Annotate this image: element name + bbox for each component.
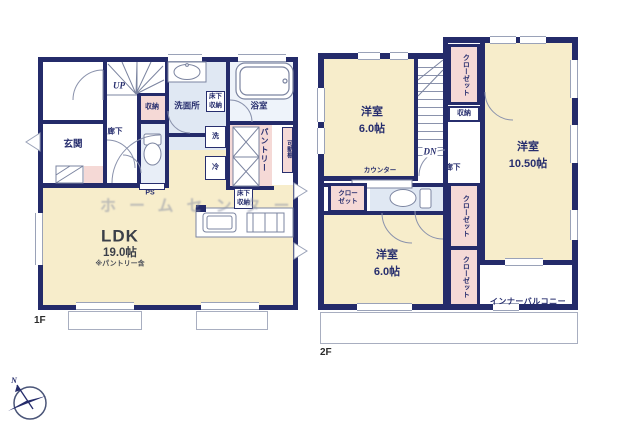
- wall: [226, 121, 298, 125]
- room-toilet-2f: [370, 185, 443, 212]
- window: [570, 125, 578, 163]
- movable-shelf-label: 可動棚: [284, 140, 292, 158]
- wall: [318, 176, 418, 181]
- window: [238, 54, 286, 62]
- window: [570, 60, 578, 98]
- window: [358, 52, 380, 60]
- bedroom-a-label: 洋室: [361, 106, 383, 120]
- closet-top-label: クローゼット: [461, 54, 470, 96]
- floorplan-canvas: 収納: [0, 0, 620, 431]
- watermark-text: ホームセンター: [100, 192, 303, 216]
- hallway-2f-label: 廊下: [446, 162, 461, 171]
- window: [317, 88, 325, 122]
- window: [168, 54, 202, 62]
- ldk-note-label: ※パントリー含: [95, 261, 144, 270]
- wall: [165, 133, 209, 137]
- closet-middle-label: クローゼット: [461, 195, 470, 237]
- ldk-size-label: 19.0帖: [103, 246, 137, 260]
- counter-label: カウンター: [363, 167, 398, 175]
- entrance-label: 玄関: [63, 139, 82, 151]
- wall: [318, 53, 451, 59]
- window: [490, 36, 516, 44]
- bathroom-label: 浴室: [250, 101, 267, 112]
- floor2-tag: 2F: [320, 347, 332, 358]
- window: [357, 303, 412, 311]
- window: [390, 52, 408, 60]
- window: [35, 213, 43, 265]
- compass-icon: [8, 385, 46, 419]
- ldk-label: LDK: [101, 225, 139, 246]
- stairs-up-label: UP: [113, 80, 125, 91]
- bedroom-c-label: 洋室: [376, 249, 398, 263]
- fridge-box: 冷: [205, 156, 226, 180]
- storage-1f-label: 収納: [145, 104, 159, 113]
- compass-north-label: N: [11, 376, 17, 386]
- wall: [43, 120, 105, 124]
- window: [201, 302, 259, 310]
- storage-2f-box: 収納: [448, 106, 480, 122]
- washer-box: 洗: [205, 126, 226, 148]
- wall: [137, 93, 167, 96]
- wall: [165, 62, 169, 188]
- window: [505, 258, 543, 266]
- bedroom-c-size: 6.0帖: [374, 266, 400, 280]
- wall: [137, 93, 141, 185]
- closet-bottom-label: クローゼット: [461, 256, 470, 298]
- inner-balcony-label: インナーバルコニー: [490, 297, 566, 307]
- window: [76, 302, 134, 310]
- closet-left-label: クローゼット: [336, 190, 360, 206]
- wall: [137, 120, 167, 124]
- wall: [480, 42, 485, 264]
- terrace-step: [68, 311, 142, 330]
- terrace-step: [196, 311, 268, 330]
- underfloor-storage-box: 床下収納: [206, 91, 225, 112]
- hallway-1f-label: 廊下: [108, 126, 123, 135]
- balcony-eaves: [320, 312, 578, 344]
- window: [570, 210, 578, 240]
- washroom-label: 洗面所: [174, 101, 200, 112]
- window: [317, 128, 325, 154]
- bedroom-b-label: 洋室: [517, 141, 539, 155]
- wall: [226, 62, 230, 190]
- pantry-label: パントリー: [259, 128, 269, 173]
- bedroom-a-size: 6.0帖: [359, 123, 385, 137]
- window: [520, 36, 546, 44]
- bedroom-b-size: 10.50帖: [509, 158, 548, 172]
- stairs-dn-label: DN: [423, 146, 438, 157]
- floor1-tag: 1F: [34, 315, 46, 326]
